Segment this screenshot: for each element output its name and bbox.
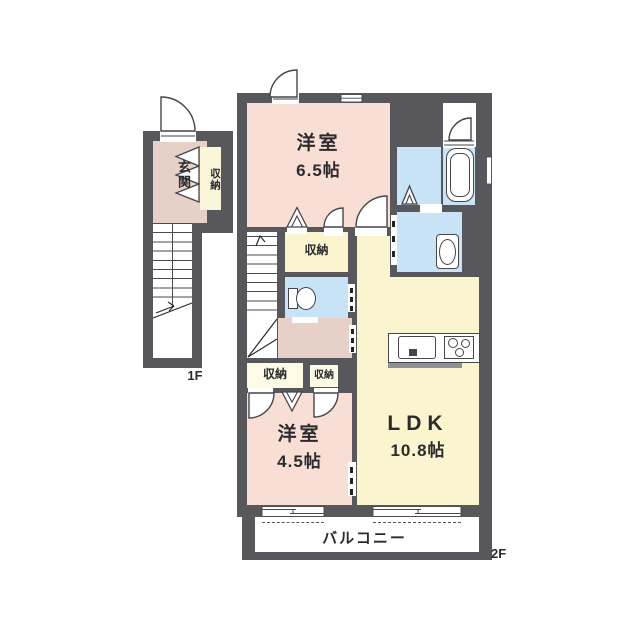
toilet-bowl xyxy=(296,287,316,310)
washbasin-bowl xyxy=(439,239,456,265)
washroom-pass-gap xyxy=(420,204,442,213)
bedroom-4-5-size: 4.5帖 xyxy=(247,452,352,472)
floorplan: 玄関 収納 1F 洋室 6.5帖 収納 収納 収納 洋室 4.5帖 LDK 10… xyxy=(0,0,640,640)
balcony-label: バルコニー xyxy=(277,530,452,547)
ldk-strip-floor xyxy=(357,236,390,505)
hallway-floor xyxy=(278,318,352,358)
bath-door-sill xyxy=(444,138,474,148)
entrance-label: 玄関 xyxy=(162,146,190,204)
ldk-size: 10.8帖 xyxy=(357,441,479,461)
ldk-name: LDK xyxy=(357,412,479,436)
bedroom45-right-door-gap xyxy=(314,388,338,394)
toilet-door-gap xyxy=(292,317,318,323)
balcony-wall-bottom xyxy=(242,552,492,560)
stair-center-line-1f xyxy=(172,223,173,306)
entrance-door-gap xyxy=(160,131,196,142)
bedroom45-left-door-gap xyxy=(248,388,273,394)
kitchen-sink xyxy=(398,336,436,359)
closet-bottom-left-label: 収納 xyxy=(247,368,303,382)
bedroom-6-5-size: 6.5帖 xyxy=(247,161,390,181)
balcony-dash-left xyxy=(262,522,324,523)
bedroom65-main-door-gap xyxy=(355,227,387,236)
closet-mid-label: 収納 xyxy=(285,244,348,258)
bedroom-6-5-name: 洋室 xyxy=(247,133,390,155)
entrance-closet-label: 収納 xyxy=(200,151,221,207)
stove-burner-3 xyxy=(455,348,464,357)
bedroom65-small-door-gap xyxy=(324,227,343,236)
stove-burner-2 xyxy=(461,339,470,348)
kitchen-faucet xyxy=(409,349,417,356)
stove-burner-1 xyxy=(448,338,458,348)
kitchen-shelf xyxy=(388,363,462,368)
balcony-dash-right xyxy=(373,522,461,523)
ldk-main-floor xyxy=(390,277,479,505)
floor-label-2f: 2F xyxy=(491,547,521,562)
floor-label-1f: 1F xyxy=(180,369,210,384)
bedroom-4-5-floor xyxy=(247,393,352,505)
washroom-upper-floor xyxy=(397,147,441,205)
stair-treads-2f xyxy=(247,236,277,318)
bedroom-4-5-name: 洋室 xyxy=(247,424,352,446)
unit-entry-door-gap xyxy=(272,93,299,104)
entrance-door-arc xyxy=(161,97,195,131)
bedroom65-closet-gap xyxy=(287,227,307,234)
bathtub-inner xyxy=(450,153,470,197)
closet-bottom-right-label: 収納 xyxy=(310,370,338,382)
